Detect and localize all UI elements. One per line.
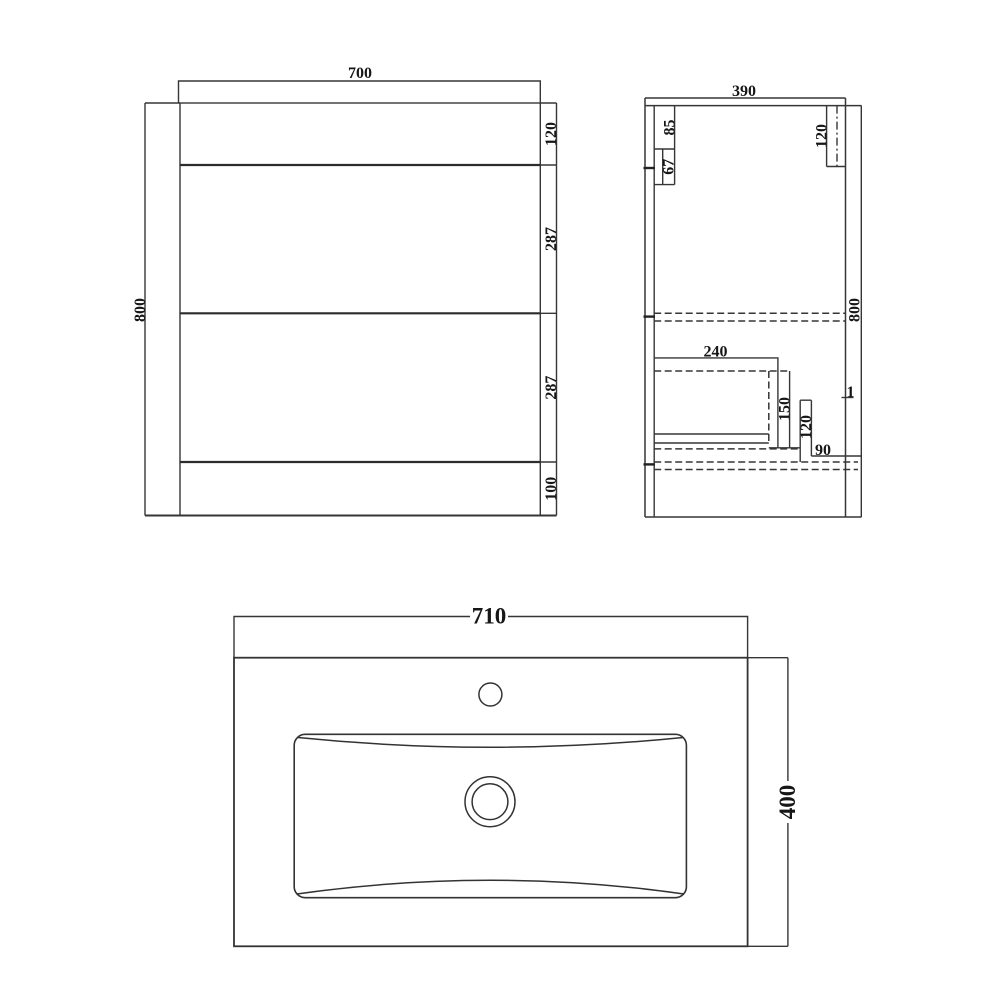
svg-text:390: 390 [732, 83, 756, 100]
svg-text:150: 150 [776, 397, 793, 421]
svg-text:1: 1 [847, 384, 855, 401]
svg-text:287: 287 [543, 227, 560, 251]
svg-text:85: 85 [661, 120, 678, 136]
svg-text:287: 287 [543, 376, 560, 400]
svg-text:700: 700 [348, 65, 372, 82]
svg-text:800: 800 [132, 298, 149, 322]
svg-text:100: 100 [543, 477, 560, 501]
svg-text:800: 800 [847, 298, 864, 322]
svg-text:400: 400 [775, 785, 800, 820]
svg-text:67: 67 [661, 159, 678, 175]
svg-text:120: 120 [543, 122, 560, 146]
svg-text:120: 120 [813, 124, 830, 148]
svg-text:240: 240 [704, 344, 728, 361]
svg-text:90: 90 [815, 442, 831, 459]
svg-text:710: 710 [472, 604, 507, 629]
svg-text:120: 120 [798, 415, 815, 439]
